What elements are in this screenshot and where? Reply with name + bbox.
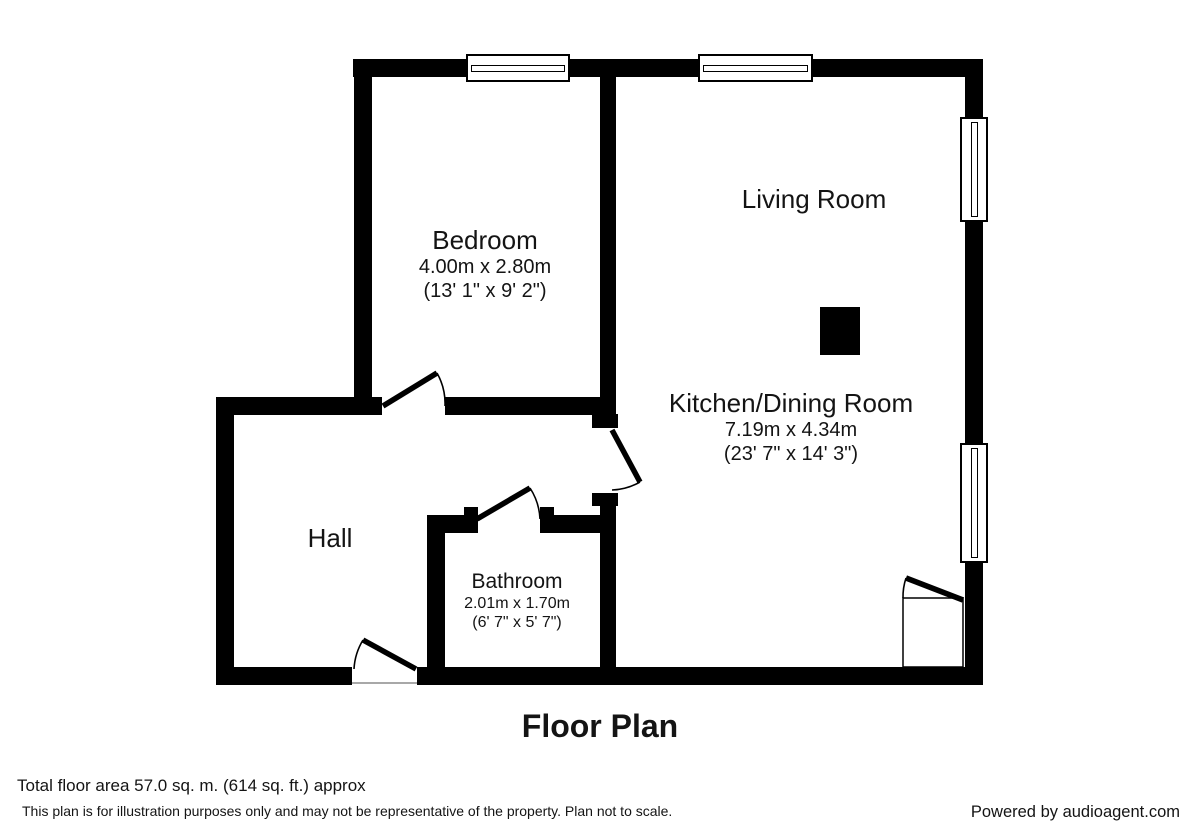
front-door-icon <box>348 631 420 675</box>
front-door-threshold <box>352 682 417 684</box>
disclaimer-text: This plan is for illustration purposes o… <box>22 803 672 820</box>
window-pane <box>971 122 978 217</box>
wall-divider-lower <box>600 493 616 667</box>
kitchen-door-icon <box>605 425 647 497</box>
kitchen-dining-label: Kitchen/Dining Room 7.19m x 4.34m (23' 7… <box>669 388 913 466</box>
room-name: Bathroom <box>464 569 570 594</box>
wall-top-segment-3 <box>813 59 983 77</box>
room-name: Living Room <box>742 184 887 214</box>
credit-text: Powered by audioagent.com <box>971 803 1180 822</box>
right-wall-window-lower-icon <box>960 443 988 563</box>
room-dims-imperial: (6' 7" x 5' 7") <box>464 613 570 632</box>
room-dims-metric: 2.01m x 1.70m <box>464 594 570 613</box>
wall-bedroom-left <box>354 59 372 415</box>
wall-right-segment-1 <box>965 59 983 117</box>
chimney-breast-block <box>820 307 860 355</box>
bathroom-door-icon <box>472 482 546 528</box>
right-wall-window-upper-icon <box>960 117 988 222</box>
bedroom-window-icon <box>466 54 570 82</box>
room-name: Bedroom <box>419 225 551 255</box>
room-dims-imperial: (23' 7" x 14' 3") <box>669 442 913 466</box>
window-pane <box>971 448 978 558</box>
wall-bathroom-left <box>427 515 445 667</box>
living-room-window-icon <box>698 54 813 82</box>
room-dims-metric: 7.19m x 4.34m <box>669 418 913 442</box>
room-dims-imperial: (13' 1" x 9' 2") <box>419 279 551 303</box>
room-name: Hall <box>308 523 353 553</box>
total-floor-area-text: Total floor area 57.0 sq. m. (614 sq. ft… <box>17 776 366 796</box>
floor-plan-page: Bedroom 4.00m x 2.80m (13' 1" x 9' 2") L… <box>0 0 1200 840</box>
room-dims-metric: 4.00m x 2.80m <box>419 255 551 279</box>
hall-label: Hall <box>308 523 353 553</box>
page-title: Floor Plan <box>0 708 1200 745</box>
wall-right-segment-2 <box>965 222 983 443</box>
window-pane <box>471 65 565 72</box>
bedroom-label: Bedroom 4.00m x 2.80m (13' 1" x 9' 2") <box>419 225 551 303</box>
wall-divider-upper <box>600 77 616 427</box>
room-name: Kitchen/Dining Room <box>669 388 913 418</box>
wall-hall-left <box>216 397 234 685</box>
wall-bottom-segment-1 <box>216 667 352 685</box>
wall-hall-top-right <box>445 397 616 415</box>
bedroom-door-icon <box>375 365 451 415</box>
living-room-label: Living Room <box>742 184 887 214</box>
window-pane <box>703 65 808 72</box>
wall-hall-top-left <box>216 397 382 415</box>
cupboard-door-icon <box>898 573 968 670</box>
bathroom-label: Bathroom 2.01m x 1.70m (6' 7" x 5' 7") <box>464 569 570 632</box>
wall-top-segment-2 <box>570 59 698 77</box>
